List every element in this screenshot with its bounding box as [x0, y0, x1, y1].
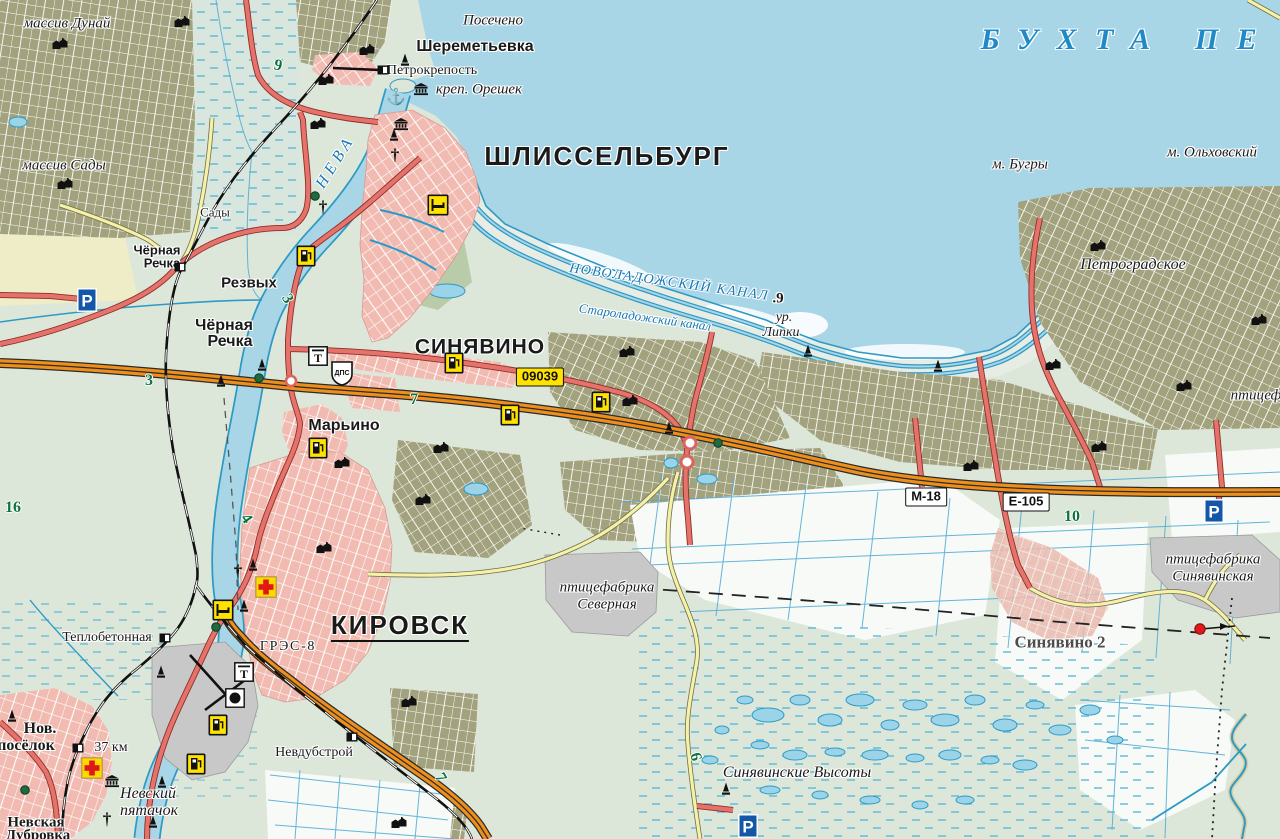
buildings-icon	[1045, 359, 1062, 371]
map-label: БУХТА ПЕ	[981, 25, 1276, 55]
map-overlay: массив Дунаймассив СадыПосеченоШереметье…	[0, 0, 1280, 839]
map-label: НЕВА	[313, 133, 358, 192]
gas-station-icon	[592, 392, 611, 413]
map-label: Петроградское	[1080, 257, 1185, 273]
km-marker: 9	[272, 56, 284, 75]
marker-dot-icon	[254, 373, 265, 384]
map-label: Невский	[120, 786, 176, 802]
parking-icon: P	[1204, 499, 1224, 523]
map-label: Синявино 2	[1014, 634, 1105, 651]
dps-post-icon: ДПС	[330, 360, 354, 386]
map-label: Синявинские Высоты	[723, 765, 871, 781]
memorial-icon: Т	[308, 346, 328, 366]
marker-dot-icon	[20, 785, 31, 796]
buildings-icon	[391, 817, 408, 829]
church-icon: †	[234, 563, 243, 580]
map-label: Сады	[200, 206, 230, 219]
buildings-icon	[316, 542, 333, 554]
map-label: 37 км	[94, 741, 127, 755]
gas-station-icon	[445, 353, 464, 374]
map-label: Марьино	[308, 418, 379, 434]
railway-station-icon	[175, 263, 186, 272]
monument-icon	[217, 375, 226, 388]
monument-icon	[8, 710, 17, 723]
railway-station-icon	[160, 634, 171, 643]
museum-icon	[414, 83, 429, 96]
map-label: НОВОЛАДОЖСКИЙ КАНАЛ	[568, 262, 769, 304]
map-label: Речка	[208, 334, 253, 350]
map-label: Дубровка	[6, 829, 71, 839]
map-label: посёлок	[0, 738, 55, 754]
windsock-icon	[1193, 621, 1237, 637]
buildings-icon	[1251, 314, 1268, 326]
marker-dot-icon	[211, 622, 222, 633]
map-label: ур.	[776, 311, 793, 325]
monument-icon	[665, 422, 674, 435]
map-label: Резвых	[221, 276, 277, 291]
monument-icon	[401, 54, 410, 67]
km-marker: 7	[410, 391, 418, 409]
monument-icon	[934, 360, 943, 373]
monument-icon	[240, 600, 249, 613]
map-label: Теплобетонная	[62, 631, 151, 645]
buildings-icon	[1091, 441, 1108, 453]
monument-icon	[157, 666, 166, 679]
gas-station-icon	[501, 405, 520, 426]
road-shield: 09039	[516, 368, 564, 387]
map-label: Шереметьевка	[416, 39, 533, 55]
buildings-icon	[1176, 380, 1193, 392]
marker-dot-icon	[713, 438, 724, 449]
km-marker: 10	[1064, 508, 1080, 526]
km-marker: 4	[236, 511, 255, 528]
buildings-icon	[310, 118, 327, 130]
km-marker: 3	[145, 372, 153, 390]
gas-station-icon	[309, 438, 328, 459]
hospital-icon	[81, 757, 103, 779]
hotel-icon	[213, 600, 234, 621]
gas-station-icon	[209, 715, 228, 736]
museum-icon	[105, 775, 120, 788]
map-label: КИРОВСК	[331, 612, 469, 642]
gas-station-icon	[297, 246, 316, 267]
road-shield: М-18	[905, 488, 947, 507]
monument-icon	[722, 783, 731, 796]
svg-text:P: P	[742, 818, 753, 837]
svg-text:Т: Т	[240, 667, 248, 681]
map-label: Северная	[577, 598, 636, 613]
buildings-icon	[52, 38, 69, 50]
buildings-icon	[415, 494, 432, 506]
map-label: Чёрная	[195, 318, 253, 334]
map-label: Синявинская	[1172, 570, 1253, 585]
svg-text:Т: Т	[314, 351, 322, 365]
svg-text:P: P	[81, 292, 92, 311]
monument-icon	[390, 129, 399, 142]
map-label: птицефабрика	[1166, 553, 1261, 568]
monument-icon	[804, 345, 813, 358]
church-icon: †	[391, 147, 400, 164]
railway-station-icon	[378, 66, 389, 75]
marker-dot-icon	[310, 191, 321, 202]
monument-icon	[249, 559, 258, 572]
km-marker: 16	[5, 499, 21, 517]
factory-icon	[225, 688, 245, 708]
map-label: Посечено	[463, 14, 523, 29]
km-marker: 3	[277, 291, 297, 307]
map-label: птицеф	[1231, 389, 1280, 404]
svg-text:P: P	[1208, 503, 1219, 522]
buildings-icon	[433, 442, 450, 454]
parking-icon: P	[77, 288, 97, 312]
buildings-icon	[174, 16, 191, 28]
hospital-icon	[255, 576, 277, 598]
map-label: птицефабрика	[560, 581, 655, 596]
gas-station-icon	[187, 754, 206, 775]
km-marker: 7	[430, 770, 450, 786]
buildings-icon	[963, 460, 980, 472]
monument-icon	[258, 359, 267, 372]
map-label: массив Дунай	[24, 17, 111, 32]
map-label: ШЛИССЕЛЬБУРГ	[484, 143, 729, 169]
map-label: Липки	[762, 326, 799, 340]
road-shield: Е-105	[1003, 493, 1050, 512]
map-label: м. Бугры	[992, 158, 1048, 173]
svg-text:ДПС: ДПС	[334, 370, 349, 377]
map-label: креп. Орешек	[436, 83, 522, 98]
buildings-icon	[359, 44, 376, 56]
map-label: .9	[772, 292, 783, 307]
map-label: массив Сады	[22, 159, 106, 174]
anchor-icon: ⚓	[386, 90, 406, 106]
map-label: Невдубстрой	[275, 746, 353, 760]
buildings-icon	[1090, 240, 1107, 252]
railway-station-icon	[73, 744, 84, 753]
buildings-icon	[318, 74, 335, 86]
church-icon: †	[103, 811, 112, 828]
map-label: Нов.	[24, 721, 57, 737]
memorial-icon: Т	[234, 662, 254, 682]
km-marker: 6	[685, 751, 704, 763]
map-label: СИНЯВИНО	[415, 337, 545, 358]
buildings-icon	[334, 457, 351, 469]
buildings-icon	[622, 395, 639, 407]
parking-icon: P	[738, 814, 758, 838]
map-label: ГРЭС-8	[260, 640, 316, 654]
monument-icon	[149, 816, 158, 829]
buildings-icon	[57, 178, 74, 190]
map-label: Староладожский канал	[578, 301, 712, 332]
monument-icon	[158, 776, 167, 789]
map-label: м. Ольховский	[1167, 146, 1257, 161]
railway-station-icon	[347, 733, 358, 742]
buildings-icon	[619, 346, 636, 358]
hotel-icon	[428, 195, 449, 216]
map-canvas[interactable]: массив Дунаймассив СадыПосеченоШереметье…	[0, 0, 1280, 839]
buildings-icon	[401, 696, 418, 708]
